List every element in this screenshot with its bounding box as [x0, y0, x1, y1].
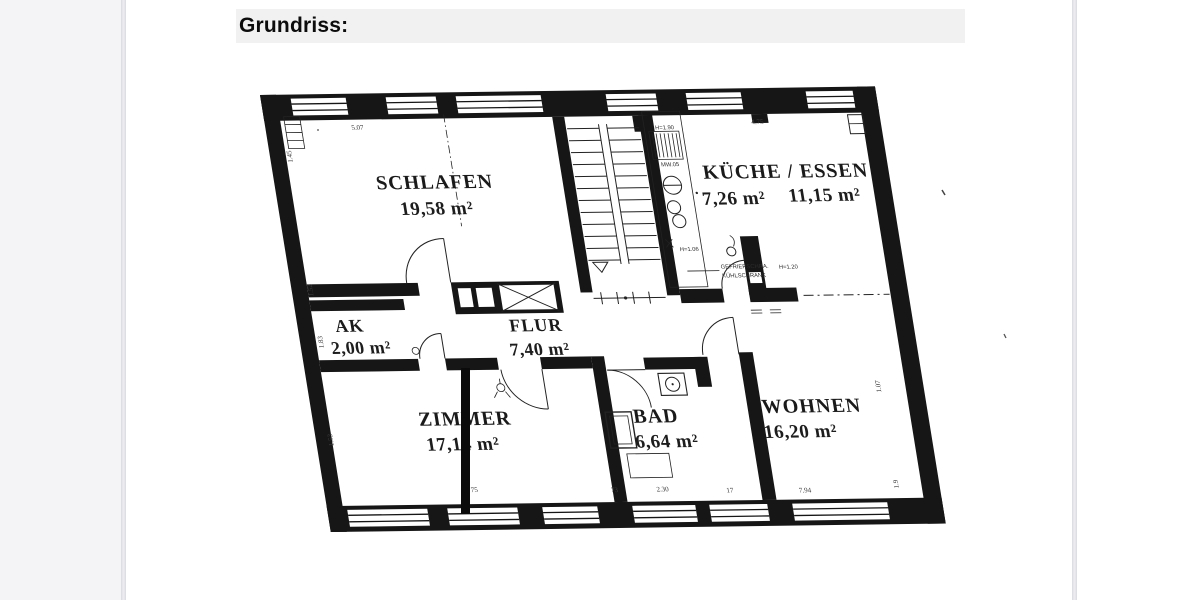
area-wohnen: 16,20 m²: [762, 421, 838, 443]
area-essen: 11,15 m²: [787, 185, 862, 207]
floorplan-image: SCHLAFEN 19,58 m² KÜCHE / ESSEN 7,26 m² …: [248, 78, 1018, 558]
page-title: Grundriss:: [236, 14, 348, 38]
label-schlafen: SCHLAFEN: [374, 171, 494, 194]
dim-bottom-3: 2.30: [656, 485, 670, 493]
fridge-height-label: H=1.20: [779, 265, 800, 271]
dim-right-2: 1.9: [892, 479, 901, 488]
scan-speck-1: [942, 190, 945, 195]
niche-height-label: H=1.90: [655, 125, 676, 131]
left-gutter-panel: [0, 0, 121, 600]
dim-right-1: 1.07: [873, 380, 883, 393]
label-bad: BAD: [631, 405, 680, 427]
dim-top-right: 4.75: [751, 118, 765, 126]
fridge-label-2: KÜHLSCHRANK: [722, 272, 767, 280]
dim-left-1: 1.45: [285, 150, 295, 163]
area-ak: 2,00 m²: [330, 337, 393, 358]
dim-left-4: 1.53: [326, 433, 336, 446]
label-kueche-essen: KÜCHE / ESSEN: [701, 159, 870, 184]
area-schlafen: 19,58 m²: [399, 198, 475, 220]
dim-bottom-1: 75: [470, 486, 479, 494]
counter-height-label: H=1.06: [680, 247, 700, 253]
area-flur: 7,40 m²: [508, 339, 571, 360]
floorplan-container: SCHLAFEN 19,58 m² KÜCHE / ESSEN 7,26 m² …: [248, 78, 1018, 558]
dim-bottom-5: 7.94: [798, 486, 812, 494]
niche-name-label: MW.05: [661, 162, 680, 168]
scan-speck-2: [1004, 334, 1006, 338]
scan-fold-bar: [461, 368, 470, 514]
fridge-label-1: GEFRIERSCHRA.: [720, 264, 769, 271]
flur-survey-line: [593, 288, 893, 315]
left-pane-divider: [121, 0, 126, 600]
dim-left-3: 1.83: [316, 336, 326, 349]
dim-top-left: 5.07: [351, 124, 365, 132]
label-flur: FLUR: [508, 315, 564, 336]
label-ak: AK: [333, 316, 365, 336]
floorplan-drawing: SCHLAFEN 19,58 m² KÜCHE / ESSEN 7,26 m² …: [260, 86, 946, 532]
page: Grundriss:: [0, 0, 1200, 600]
area-bad: 6,64 m²: [634, 431, 700, 453]
right-pane-divider: [1072, 0, 1077, 600]
section-header: Grundriss:: [236, 9, 965, 43]
label-wohnen: WOHNEN: [760, 395, 863, 418]
scan-speck-3: [317, 129, 319, 131]
area-kueche: 7,26 m²: [701, 188, 767, 210]
dim-bottom-4: 17: [726, 486, 735, 494]
